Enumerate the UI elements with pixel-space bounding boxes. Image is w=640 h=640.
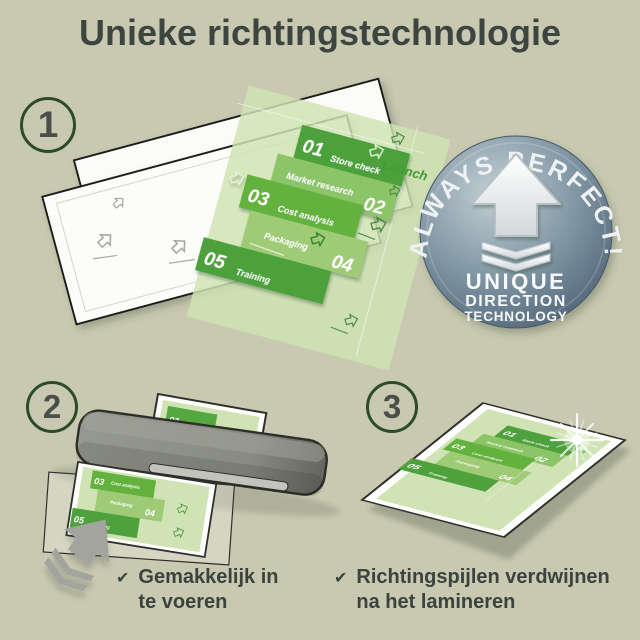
always-perfect-badge: ALWAYS PERFECT! UNIQUE DIRECTION TECHNOL… [412,126,620,338]
badge-line-technology: TECHNOLOGY [464,309,567,324]
step-number-1-label: 1 [38,104,59,146]
caption-text: Richtingspijlen verdwijnen na het lamine… [356,565,609,615]
step-number-3-label: 3 [383,388,401,426]
check-icon: ✔ [116,568,129,615]
poster-background: Unieke richtingstechnologie [0,0,640,640]
check-icon: ✔ [334,568,347,615]
step-number-3: 3 [366,381,418,433]
caption-arrows-disappear: ✔ Richtingspijlen verdwijnen na het lami… [334,565,610,615]
mini-block-number: 03 [93,476,104,487]
step-number-2: 2 [26,381,78,433]
step-number-2-label: 2 [43,388,61,426]
caption-easy-feed: ✔ Gemakkelijk in te voeren [116,565,278,615]
caption-text: Gemakkelijk in te voeren [138,565,278,615]
step-number-1: 1 [20,97,76,153]
mini-block-number: 04 [144,507,155,518]
badge-line-unique: UNIQUE [466,269,567,294]
badge-line-direction: DIRECTION [465,293,567,310]
page-title: Unieke richtingstechnologie [0,12,640,54]
